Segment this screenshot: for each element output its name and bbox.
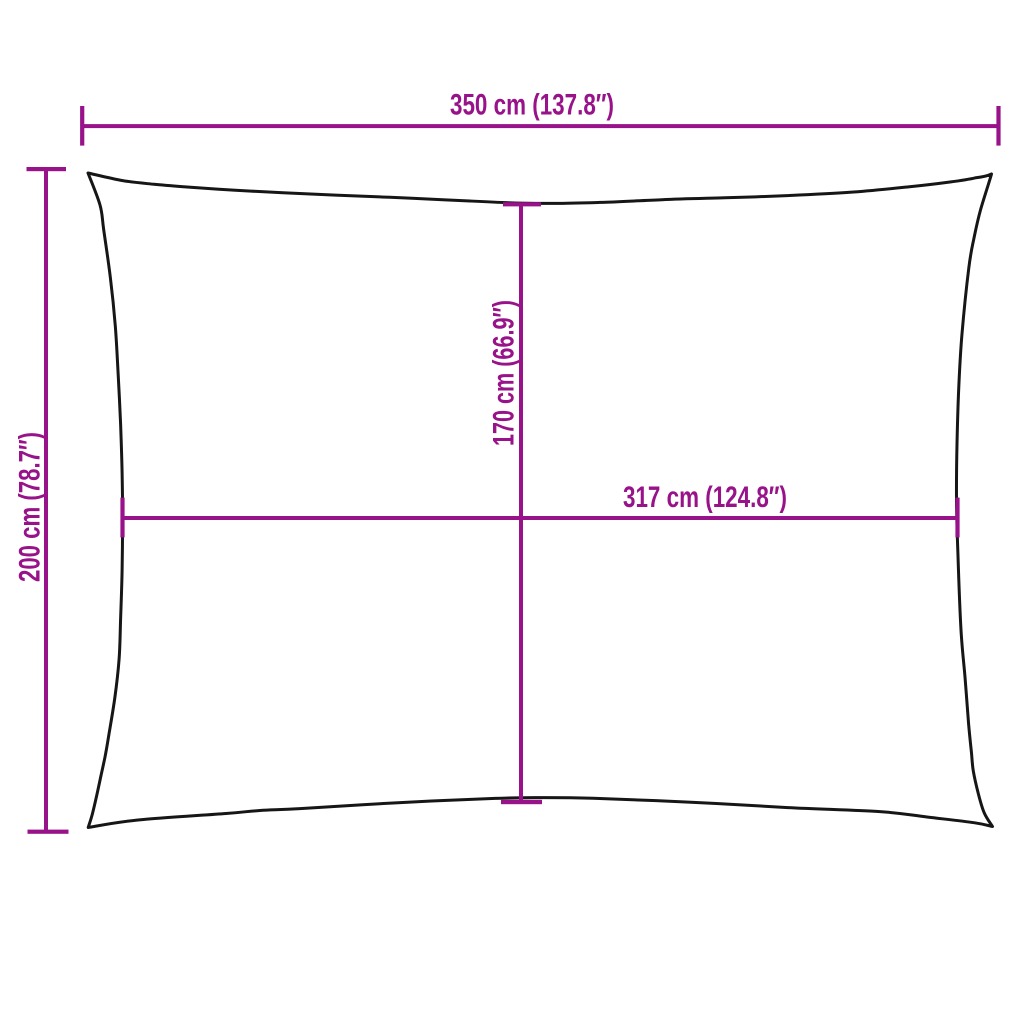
svg-text:170 cm (66.9″): 170 cm (66.9″) xyxy=(488,300,521,446)
svg-text:317 cm (124.8″): 317 cm (124.8″) xyxy=(623,481,787,514)
svg-text:350 cm (137.8″): 350 cm (137.8″) xyxy=(450,89,614,122)
svg-text:200 cm (78.7″): 200 cm (78.7″) xyxy=(14,432,47,582)
